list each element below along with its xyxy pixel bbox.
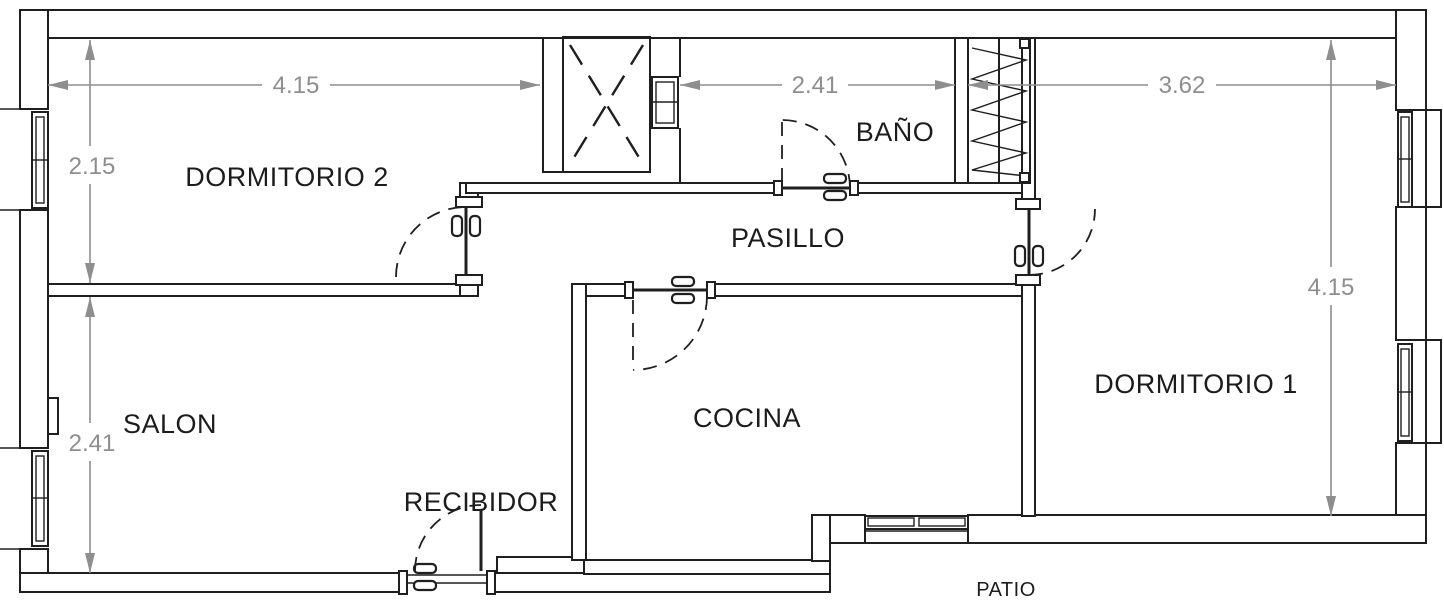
light-shaft [563, 37, 650, 172]
dimension-bano-width: 2.41 [680, 72, 955, 99]
door-frame [850, 181, 858, 195]
dim-arrow-up [85, 40, 95, 60]
door-handle [414, 581, 436, 590]
door-frame [774, 181, 782, 195]
dimension-salon-height: 2.41 [69, 297, 116, 573]
door-cocina [625, 277, 715, 370]
dimension-dormitorio2-width: 4.15 [48, 72, 540, 99]
door-handle [1015, 246, 1025, 266]
door-frame [399, 571, 407, 594]
window-salon [0, 448, 48, 549]
closet-pivot-bottom [1020, 173, 1029, 182]
window-exterior-bump [1426, 110, 1441, 207]
wall-right-middle [1396, 207, 1426, 340]
wall-pasillo-north-a [466, 183, 782, 193]
dim-arrow-right [935, 80, 955, 90]
wall-bano-closet-divider [955, 38, 968, 183]
dim-arrow-left [968, 80, 988, 90]
dim-value: 4.15 [1308, 274, 1355, 301]
dim-arrow-left [680, 80, 700, 90]
wall-cocina-north-b [707, 284, 1022, 296]
dim-value: 3.62 [1159, 72, 1206, 99]
door-handle [672, 277, 694, 286]
floor-plan-drawing: 4.15 2.41 3.62 2.15 [0, 0, 1444, 610]
room-label-dormitorio2: DORMITORIO 2 [185, 162, 389, 192]
walls [20, 10, 1426, 592]
room-label-recibidor: RECIBIDOR [404, 487, 559, 517]
window-bano-shaft [652, 77, 678, 128]
wall-top [20, 10, 1426, 38]
dimension-dormitorio1-height: 4.15 [1308, 40, 1355, 516]
dim-arrow-right [520, 80, 540, 90]
closet-pivot-top [1020, 39, 1029, 48]
dim-value: 2.41 [69, 430, 116, 457]
window-exterior-bump [1426, 340, 1441, 443]
dim-arrow-up [85, 297, 95, 317]
room-label-bano: BAÑO [856, 116, 935, 147]
door-handle [452, 216, 462, 236]
wall-pasillo-north-b [850, 183, 1035, 193]
room-label-patio: PATIO [976, 579, 1036, 601]
wall-dorm1-west-lower [1022, 275, 1035, 516]
room-label-cocina: COCINA [693, 403, 801, 433]
door-handle [414, 564, 436, 573]
door-frame [456, 197, 482, 207]
wall-right-upper [1396, 10, 1426, 110]
dim-value: 4.15 [273, 72, 320, 99]
window-dormitorio1-lower [1398, 340, 1441, 443]
wall-bottom-left-b [487, 573, 830, 592]
dim-arrow-left [48, 80, 68, 90]
door-entrance [399, 505, 495, 594]
wall-cocina-floor [584, 560, 830, 574]
door-dormitorio1 [1015, 199, 1095, 285]
wall-salon-dorm2-divider [48, 284, 478, 296]
door-handle [672, 294, 694, 303]
wall-shaft-divider [543, 38, 563, 172]
dimensions: 4.15 2.41 3.62 2.15 [48, 40, 1396, 573]
wall-cocina-west [572, 284, 586, 560]
dim-arrow-down [85, 263, 95, 283]
room-label-pasillo: PASILLO [731, 223, 845, 253]
dim-value: 2.15 [69, 153, 116, 180]
door-handle [824, 174, 846, 183]
built-in-closet [968, 38, 1030, 183]
wall-bottom-right-b [968, 515, 1426, 543]
window-dormitorio1-upper [1398, 110, 1441, 207]
window-cocina [865, 516, 968, 543]
wall-bottom-right-a [830, 515, 865, 543]
door-handle [824, 191, 846, 200]
window-dormitorio2 [0, 109, 48, 210]
wall-left-upper [20, 10, 48, 109]
dim-value: 2.41 [792, 72, 839, 99]
door-frame [625, 282, 633, 298]
door-frame [487, 571, 495, 594]
windows [0, 77, 1441, 549]
door-handle [470, 216, 480, 236]
room-label-salon: SALON [123, 409, 217, 439]
door-frame [456, 275, 482, 285]
door-frame [1016, 199, 1040, 209]
door-dormitorio2 [396, 197, 482, 285]
door-bano [774, 120, 858, 200]
dim-arrow-right [1376, 80, 1396, 90]
light-shaft-outline [563, 37, 650, 172]
dim-arrow-down [1326, 496, 1336, 516]
wall-recibidor-step [497, 557, 584, 573]
door-frame [707, 282, 715, 298]
wall-bottom-left-a [20, 573, 407, 592]
door-handle [1033, 246, 1043, 266]
door-frame [1016, 275, 1040, 285]
dim-arrow-up [1326, 40, 1336, 60]
wall-salon-pilaster [48, 398, 58, 434]
floor-plan: 4.15 2.41 3.62 2.15 [0, 0, 1444, 610]
dimension-dormitorio2-height: 2.15 [69, 40, 116, 283]
wall-step-connector [812, 515, 830, 561]
wall-left-middle [20, 210, 48, 448]
door-swing-arc [633, 296, 707, 370]
room-label-dormitorio1: DORMITORIO 1 [1094, 369, 1298, 399]
dim-arrow-down [85, 553, 95, 573]
